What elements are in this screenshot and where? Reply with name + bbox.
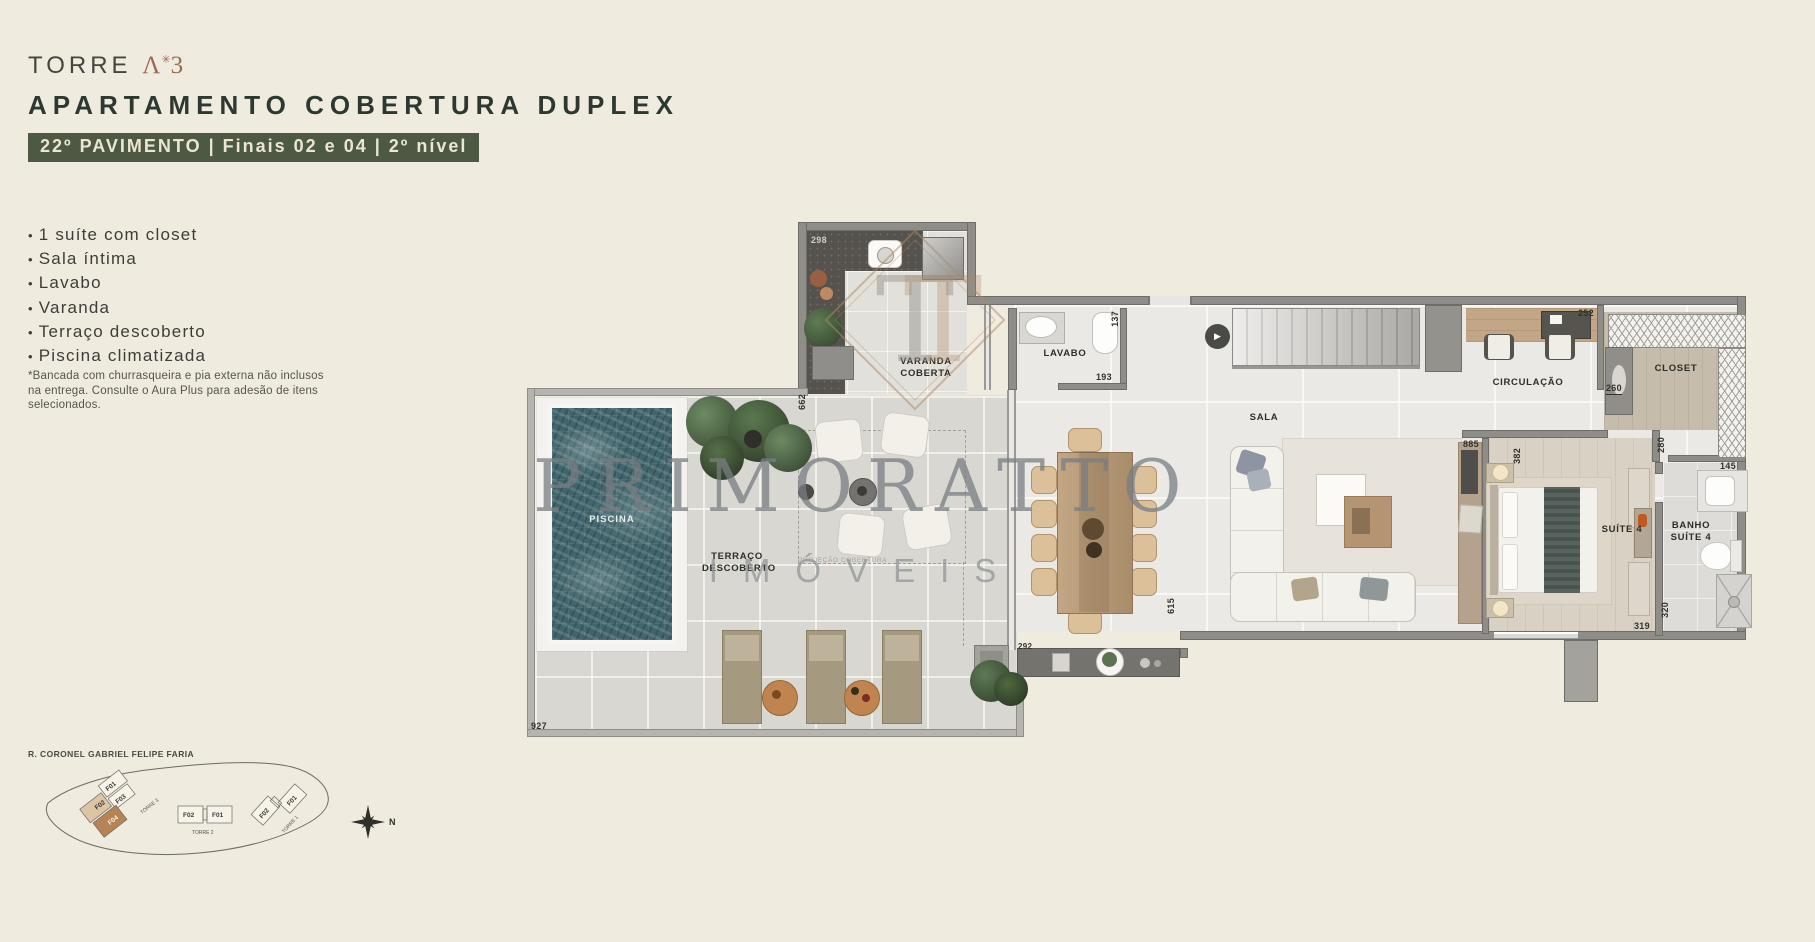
room-label-projecao-cobertura: PROJEÇÃO COBERTURA <box>798 555 938 567</box>
lounge-headrest <box>885 635 919 661</box>
tower-2: F02 F01 TORRE 2 <box>178 806 232 836</box>
stair-railing <box>1232 366 1420 369</box>
tv-panel <box>1461 450 1478 494</box>
deco-box <box>1052 653 1070 672</box>
dining-chair <box>1031 500 1057 528</box>
tower-label: TORRE 3 <box>139 798 160 816</box>
unit-label: F01 <box>212 812 224 819</box>
wall <box>1008 308 1017 390</box>
plant <box>994 672 1028 706</box>
dim-319: 319 <box>1634 621 1650 631</box>
room-label-piscina: PISCINA <box>572 514 652 526</box>
sink-basin <box>877 247 894 264</box>
deco-object <box>1154 660 1161 667</box>
toilet-tank <box>1730 540 1742 572</box>
dim-662: 662 <box>797 394 807 410</box>
wall <box>1655 462 1663 474</box>
dim-145: 145 <box>1720 461 1736 471</box>
parapet <box>527 729 1024 737</box>
lounge-headrest <box>725 635 759 661</box>
wall <box>967 296 1746 305</box>
deco-object <box>1140 658 1150 668</box>
grill <box>922 237 964 280</box>
dim-927: 927 <box>531 721 547 731</box>
deco-plate <box>820 287 833 300</box>
dim-252: 252 <box>1578 308 1594 318</box>
suite-window <box>1494 632 1578 639</box>
plant <box>700 436 744 480</box>
parapet <box>527 388 535 737</box>
art-frame <box>1458 504 1483 534</box>
room-label-terraco: TERRAÇO DESCOBERTO <box>702 551 772 574</box>
site-map: F02 F01 F03 F04 TORRE 3 F02 F01 TORRE 2 … <box>20 758 440 883</box>
dining-chair <box>1068 428 1102 452</box>
wall <box>1120 308 1127 390</box>
varanda-glass-door <box>984 305 991 390</box>
terrace-glass-wall <box>1007 390 1016 650</box>
headboard <box>1490 485 1498 595</box>
shower-drain <box>1728 596 1740 608</box>
table-deco <box>772 690 781 699</box>
room-label-lavabo: LAVABO <box>1040 348 1090 360</box>
dim-320: 320 <box>1660 602 1670 618</box>
bath-sink <box>1705 476 1735 506</box>
dim-280: 280 <box>1656 437 1666 453</box>
dresser <box>1628 562 1650 616</box>
room-label-closet: CLOSET <box>1650 363 1702 375</box>
pillow <box>1291 576 1320 601</box>
tower-core <box>203 809 207 820</box>
compass-icon: N <box>351 805 396 839</box>
wall <box>1058 383 1127 390</box>
parapet <box>527 388 808 396</box>
room-label-varanda-coberta: VARANDA COBERTA <box>890 356 962 379</box>
dining-chair <box>1031 466 1057 494</box>
lavabo-sink <box>1025 316 1057 338</box>
wardrobe-rack <box>1718 348 1746 458</box>
table-deco <box>862 694 870 702</box>
round-side-table <box>762 680 798 716</box>
armchair <box>814 418 864 465</box>
centerpiece <box>1082 518 1104 540</box>
armchair <box>836 512 886 559</box>
wall <box>1597 305 1604 390</box>
wall <box>798 222 807 394</box>
toilet <box>1700 542 1732 570</box>
dining-chair <box>1031 534 1057 562</box>
plant <box>804 308 842 348</box>
fire-table-center <box>857 486 867 496</box>
wall-stub <box>1564 640 1598 702</box>
room-label-circulacao: CIRCULAÇÃO <box>1488 377 1568 389</box>
dining-chair <box>1131 466 1157 494</box>
staircase <box>1232 308 1420 366</box>
dim-292: 292 <box>1018 642 1032 651</box>
lounge-chair <box>806 630 846 724</box>
plant <box>764 424 812 472</box>
wall <box>1462 430 1608 438</box>
lounge-headrest <box>809 635 843 661</box>
dim-260: 260 <box>1606 383 1622 395</box>
desk-paper <box>1550 315 1562 324</box>
stairs-direction-icon: ▶ <box>1205 324 1230 349</box>
lamp <box>1492 600 1509 617</box>
dim-615: 615 <box>1166 598 1176 614</box>
armchair <box>879 411 930 459</box>
dining-chair <box>1131 500 1157 528</box>
shaft-block <box>1425 305 1462 372</box>
sofa <box>1230 572 1416 622</box>
wall <box>798 222 976 231</box>
dim-298: 298 <box>811 235 827 245</box>
table-deco <box>851 687 859 695</box>
room-label-sala: SALA <box>1242 412 1286 424</box>
dining-chair <box>1031 568 1057 596</box>
tower-label: TORRE 2 <box>192 830 214 836</box>
centerpiece <box>1086 542 1102 558</box>
tower-3: F02 F01 F03 F04 TORRE 3 <box>75 762 160 844</box>
lounge-chair <box>882 630 922 724</box>
wall <box>967 222 976 305</box>
table-tray <box>1352 508 1370 534</box>
plant-pot <box>744 430 762 448</box>
room-label-suite-4: SUÍTE 4 <box>1596 524 1648 536</box>
tower-1: F02 F01 TORRE 1 <box>251 776 315 841</box>
office-chair <box>1484 334 1514 360</box>
armchair <box>901 502 954 551</box>
wall <box>1180 648 1188 658</box>
compass-north-label: N <box>389 817 396 827</box>
unit-label: F02 <box>183 812 195 819</box>
room-label-banho-suite-4: BANHO SUÍTE 4 <box>1668 520 1714 543</box>
office-chair <box>1545 334 1575 360</box>
dining-chair <box>1131 568 1157 596</box>
dining-chair <box>1131 534 1157 562</box>
vase-plant <box>1102 652 1117 667</box>
pillow <box>1359 577 1389 602</box>
side-table <box>798 484 814 500</box>
deco-plate <box>810 270 827 287</box>
dim-193: 193 <box>1096 372 1112 382</box>
bed-throw <box>1544 487 1580 593</box>
bed-pillow <box>1502 492 1518 538</box>
bed-pillow <box>1502 544 1518 590</box>
page: TORRE Λ✳3 APARTAMENTO COBERTURA DUPLEX 2… <box>0 0 1815 942</box>
lounge-chair <box>722 630 762 724</box>
door-opening <box>1148 296 1192 305</box>
dim-382: 382 <box>1512 448 1522 464</box>
dim-885: 885 <box>1463 439 1479 449</box>
cover-projection-line <box>963 562 965 646</box>
planter-box <box>812 346 854 380</box>
lamp <box>1492 464 1509 481</box>
dim-137: 137 <box>1110 311 1120 327</box>
wardrobe-rack <box>1608 314 1746 348</box>
